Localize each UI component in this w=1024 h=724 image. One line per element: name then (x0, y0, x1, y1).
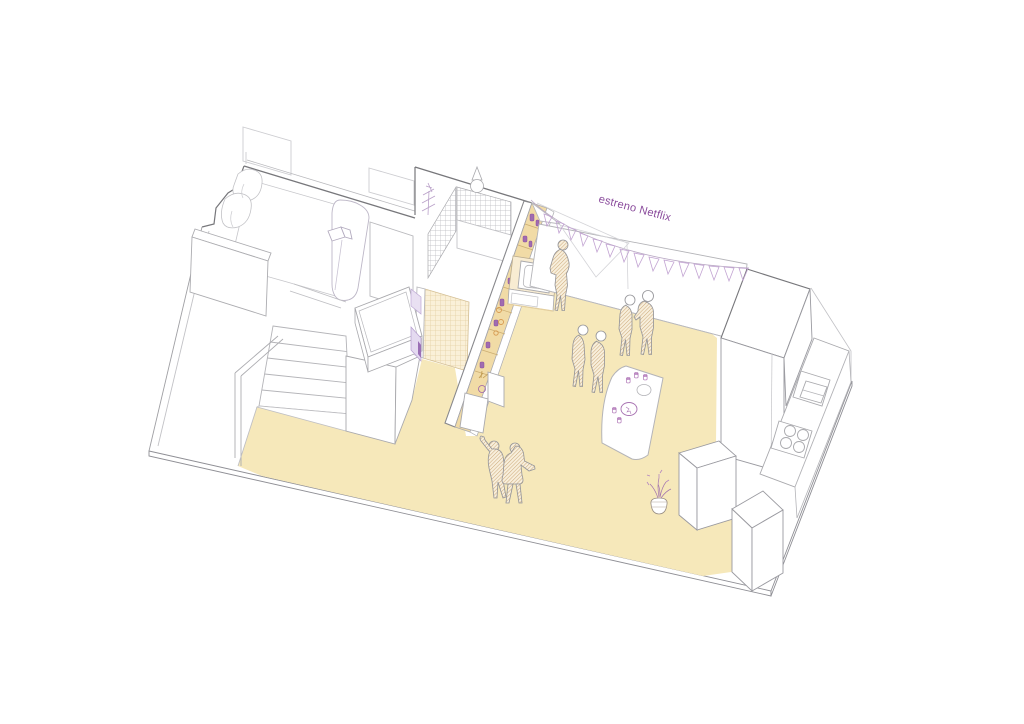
svg-text:estreno Netflix: estreno Netflix (597, 193, 672, 224)
